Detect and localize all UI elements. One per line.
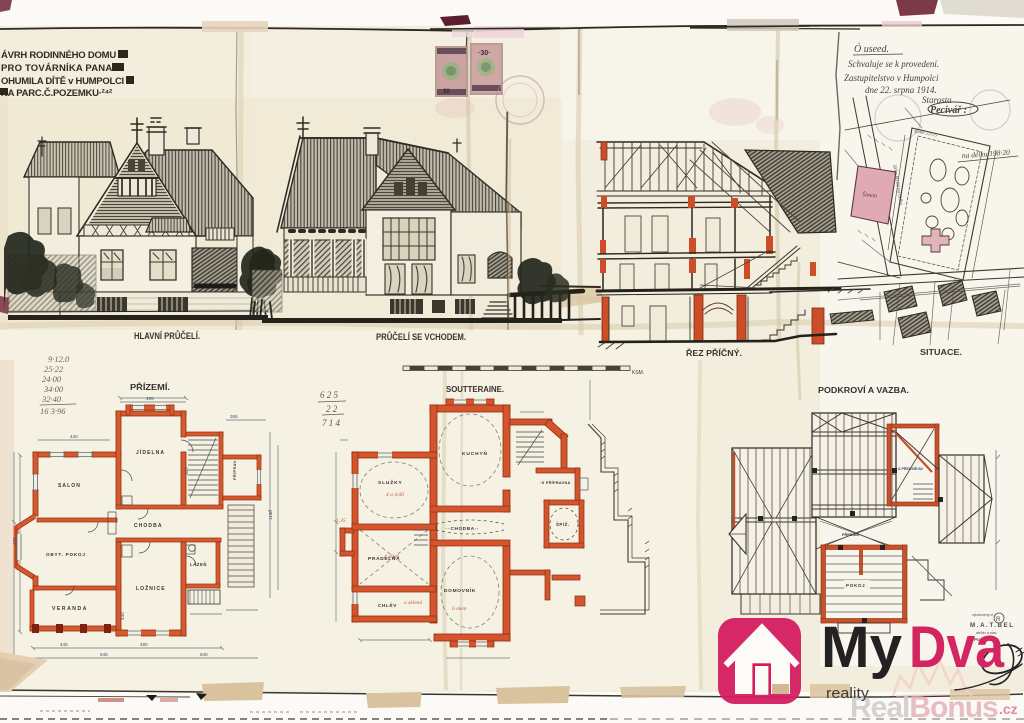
svg-text:PRO TOVÁRNÍKA PANA: PRO TOVÁRNÍKA PANA (1, 63, 113, 74)
svg-text:ŠPÍŽ.: ŠPÍŽ. (556, 522, 569, 527)
svg-text:LOŽNICE: LOŽNICE (136, 584, 166, 592)
svg-text:34·00: 34·00 (43, 384, 64, 394)
svg-text:16 3·96: 16 3·96 (40, 406, 66, 416)
svg-text:NA PARC.Č.POZEMKU·²⁴²: NA PARC.Č.POZEMKU·²⁴² (1, 87, 113, 99)
svg-text:32·40: 32·40 (41, 394, 62, 404)
svg-text:ÁVRH RODINNÉHO DOMU: ÁVRH RODINNÉHO DOMU (1, 50, 117, 61)
svg-text:VERANDA: VERANDA (52, 606, 88, 612)
svg-text:640: 640 (200, 652, 208, 657)
svg-text:·30·: ·30· (478, 50, 490, 57)
svg-text:dne 22. srpna 1914.: dne 22. srpna 1914. (865, 85, 937, 95)
svg-text:9·12.0: 9·12.0 (48, 354, 70, 364)
svg-text:CHLÉV: CHLÉV (378, 601, 397, 608)
svg-text:reality: reality (826, 685, 870, 702)
svg-text:OHUMILA DÍTĚ v HUMPOLCI: OHUMILA DÍTĚ v HUMPOLCI (1, 75, 125, 87)
svg-text:30: 30 (443, 89, 450, 95)
svg-text:Zastupitelstvo v Humpolci: Zastupitelstvo v Humpolci (844, 73, 939, 83)
svg-text:OBYT. POKOJ: OBYT. POKOJ (46, 552, 86, 557)
svg-text:4 a 4,60: 4 a 4,60 (386, 491, 404, 498)
svg-text:1150: 1150 (268, 510, 273, 520)
svg-text:PODKROVÍ A VAZBA.: PODKROVÍ A VAZBA. (818, 386, 909, 395)
svg-text:7 1 4: 7 1 4 (322, 418, 341, 428)
svg-text:PRÁDELNA: PRÁDELNA (368, 555, 400, 562)
svg-text:SOUTTERAINE.: SOUTTERAINE. (446, 385, 504, 394)
svg-text:Schvaluje se k provedení.: Schvaluje se k provedení. (848, 59, 939, 69)
svg-text:HLAVNÍ PRŮČELÍ.: HLAVNÍ PRŮČELÍ. (134, 330, 200, 341)
svg-text:305: 305 (184, 467, 189, 475)
svg-text:265: 265 (230, 414, 238, 419)
svg-text:490: 490 (140, 642, 148, 647)
svg-text:2 2: 2 2 (326, 404, 338, 414)
svg-text:CHODBA: CHODBA (134, 523, 163, 529)
svg-text:25·22: 25·22 (44, 364, 64, 374)
svg-text:JÍDELNA: JÍDELNA (136, 448, 165, 456)
svg-text:Ó useed.: Ó useed. (854, 43, 889, 55)
svg-text:Dva: Dva (909, 615, 1005, 680)
svg-text:430: 430 (120, 612, 125, 620)
svg-text:PŘÍZEMÍ.: PŘÍZEMÍ. (130, 383, 170, 392)
svg-text:My: My (821, 615, 902, 680)
svg-text:A PŘEDSÍŇ B2: A PŘEDSÍŇ B2 (898, 466, 923, 471)
svg-text:24·00: 24·00 (42, 374, 62, 384)
svg-text:.cz: .cz (999, 701, 1018, 717)
svg-text:495: 495 (146, 396, 154, 401)
svg-text:470: 470 (12, 537, 17, 545)
svg-text:··CHODBA··: ··CHODBA·· (446, 526, 479, 531)
svg-text:PŘEDSÍŇ: PŘEDSÍŇ (842, 532, 859, 537)
svg-text:440: 440 (70, 434, 78, 439)
svg-text:6 oken: 6 oken (452, 606, 467, 612)
svg-text:445: 445 (60, 642, 68, 647)
svg-text:·S PŘÍPRAVNA: ·S PŘÍPRAVNA (540, 480, 571, 485)
svg-text:SALON: SALON (58, 483, 81, 489)
svg-text:POKOJ: POKOJ (846, 583, 865, 588)
svg-text:a sklená: a sklená (404, 600, 422, 606)
svg-text:SITUACE.: SITUACE. (920, 348, 962, 357)
svg-text:ŘEZ PŘÍČNÝ.: ŘEZ PŘÍČNÝ. (686, 349, 742, 358)
svg-text:KSM.: KSM. (632, 370, 644, 376)
svg-text:PRŮČELÍ SE VCHODEM.: PRŮČELÍ SE VCHODEM. (376, 331, 466, 342)
svg-text:LÁZEŇ: LÁZEŇ (190, 562, 207, 567)
svg-text:6 2 5: 6 2 5 (320, 390, 339, 400)
svg-text:PŘÍPRAV.: PŘÍPRAV. (232, 459, 237, 480)
svg-text:645: 645 (100, 652, 108, 657)
svg-text:RealBonus: RealBonus (850, 691, 998, 723)
